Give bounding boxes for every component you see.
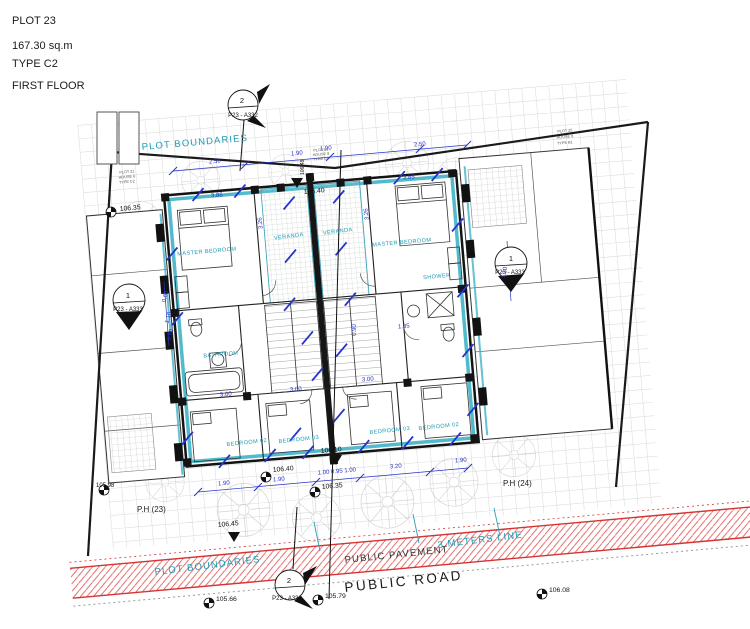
dim-300-b: 3.00 — [290, 386, 303, 393]
level-105-98: 105.98 — [96, 483, 115, 489]
marker-top-ref: P23 - A332 — [228, 113, 258, 119]
neighbour-note-left: PLOT 21 HOUSE 6 TYPE C2 — [118, 169, 135, 184]
level-105-66: 105.66 — [216, 596, 237, 603]
dim-190-e: 1.90 — [273, 476, 286, 483]
garage-outline — [97, 112, 139, 164]
neighbour-note-right: PLOT 25 HOUSE 8 TYPE B1 — [556, 128, 573, 145]
dim-300-c: 3.00 — [362, 376, 375, 383]
dim-300-a: 3.00 — [220, 391, 233, 398]
title-area: 167.30 sq.m — [12, 40, 73, 52]
level-106-35-bottom: 106.35 — [322, 482, 344, 491]
svg-text:TYPE C2: TYPE C2 — [119, 179, 135, 184]
dim-250-b: 2.50 — [414, 141, 427, 148]
dim-185: 1.85 — [398, 323, 411, 330]
level-106-08: 106.08 — [549, 587, 570, 594]
title-plot: PLOT 23 — [12, 15, 56, 27]
dim-250-a: 2.50 — [209, 158, 222, 165]
marker-bottom-ref: P23 - A332 — [272, 596, 302, 602]
neighbour-house-right — [459, 148, 612, 440]
dim-320: 3.20 — [390, 463, 403, 470]
dim-385: 3.85 — [403, 174, 416, 181]
ph-right-label: P.H (24) — [503, 479, 532, 488]
reference-marker-top: 2 P23 - A332 — [228, 84, 270, 128]
marker-right-ref: P23 - A333 — [495, 270, 525, 276]
dim-190-a: 1.90 — [291, 150, 304, 157]
level-106-45: 106.45 — [218, 520, 240, 529]
level-106-48: 106.48 — [300, 159, 306, 175]
marker-top-number: 2 — [240, 96, 244, 105]
sheet-title-block: PLOT 23 167.30 sq.m TYPE C2 FIRST FLOOR — [12, 15, 85, 92]
marker-left-number: 1 — [126, 291, 130, 300]
level-106-40-bottom: 106.40 — [273, 465, 295, 474]
dim-386: 3.86 — [211, 192, 224, 199]
title-floor: FIRST FLOOR — [12, 80, 85, 92]
floor-plan-sheet: 2 P23 - A332 2 P23 - A332 1 P23 - A333 1… — [0, 0, 750, 629]
dim-190-c: 1.90 — [455, 457, 468, 464]
level-105-79: 105.79 — [325, 593, 346, 600]
marker-bottom-number: 2 — [287, 576, 291, 585]
veranda-right-area — [314, 181, 369, 298]
plot-boundaries-top-label: PLOT BOUNDARIES — [141, 133, 248, 153]
neighbour-note-top: PLOT 22 HOUSE 9 TYPE C2 — [312, 147, 329, 161]
marker-left-ref: P23 - A333 — [113, 307, 143, 313]
dim-190-d: 1.90 — [218, 480, 231, 487]
svg-text:HOUSE 8: HOUSE 8 — [556, 134, 573, 139]
marker-right-number: 1 — [509, 254, 513, 263]
svg-text:TYPE B1: TYPE B1 — [557, 140, 573, 145]
floor-plan-drawing: 2 P23 - A332 2 P23 - A332 1 P23 - A333 1… — [0, 0, 750, 629]
dim-090: 0.90 — [352, 324, 358, 336]
ph-left-label: P.H (23) — [137, 505, 166, 514]
title-type: TYPE C2 — [12, 58, 58, 70]
